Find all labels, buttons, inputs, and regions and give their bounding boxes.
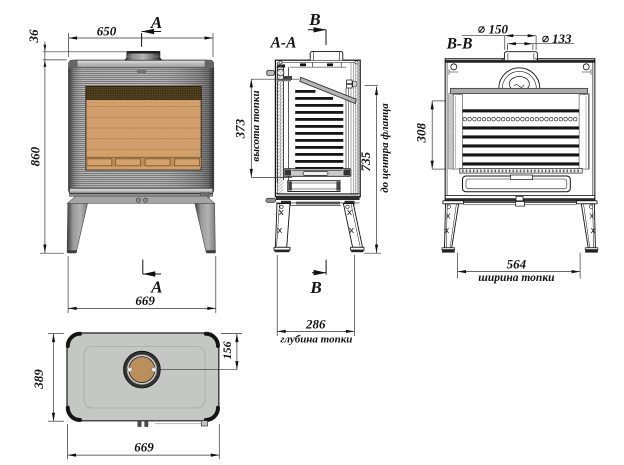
- svg-text:669: 669: [134, 439, 154, 454]
- svg-text:286: 286: [305, 316, 326, 331]
- svg-text:150: 150: [489, 21, 509, 36]
- svg-text:B: B: [309, 278, 321, 297]
- svg-text:ширина топки: ширина топки: [478, 272, 555, 284]
- svg-text:A: A: [150, 278, 162, 297]
- svg-text:B: B: [308, 10, 320, 29]
- svg-text:156: 156: [220, 341, 234, 359]
- svg-text:308: 308: [414, 123, 429, 144]
- svg-text:133: 133: [552, 31, 572, 46]
- svg-text:650: 650: [97, 23, 117, 38]
- svg-text:860: 860: [28, 146, 43, 166]
- svg-text:до центра фланца: до центра фланца: [379, 103, 391, 193]
- svg-text:564: 564: [507, 257, 527, 272]
- svg-text:A-A: A-A: [270, 34, 297, 51]
- svg-text:735: 735: [358, 151, 373, 171]
- svg-text:B-B: B-B: [446, 36, 473, 53]
- svg-text:373: 373: [233, 118, 248, 139]
- svg-text:высота топки: высота топки: [250, 90, 262, 161]
- svg-text:A: A: [150, 13, 162, 32]
- svg-text:36: 36: [26, 29, 41, 44]
- svg-text:глубина топки: глубина топки: [280, 333, 352, 345]
- svg-text:389: 389: [31, 369, 46, 390]
